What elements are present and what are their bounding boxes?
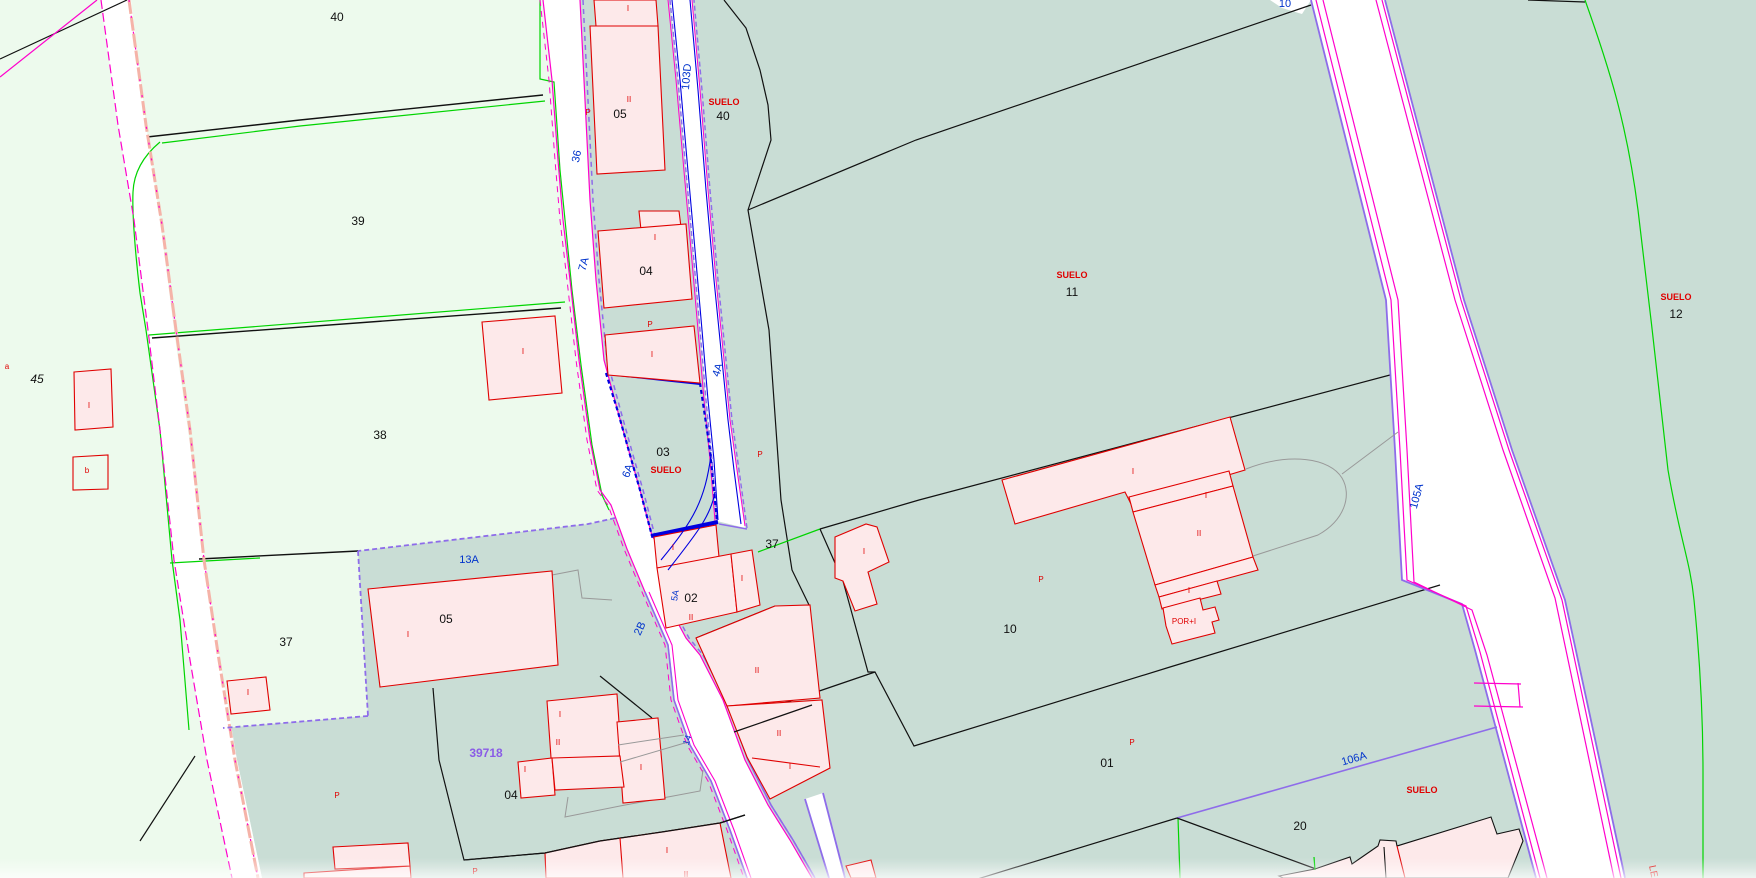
svg-text:5A: 5A (669, 589, 681, 602)
svg-text:01: 01 (1100, 756, 1114, 770)
svg-text:SUELO: SUELO (650, 465, 681, 475)
svg-text:10: 10 (1003, 622, 1017, 636)
svg-text:POR+I: POR+I (1172, 617, 1196, 626)
svg-text:I: I (1132, 467, 1134, 476)
svg-text:02: 02 (684, 591, 698, 605)
svg-text:37: 37 (279, 635, 293, 649)
svg-text:SUELO: SUELO (1406, 785, 1437, 795)
svg-text:05: 05 (439, 612, 453, 626)
svg-text:10: 10 (1279, 0, 1291, 10)
svg-text:I: I (863, 547, 865, 556)
svg-text:36: 36 (570, 149, 584, 163)
svg-text:37: 37 (765, 537, 779, 551)
svg-text:I: I (789, 762, 791, 771)
svg-text:II: II (755, 666, 759, 675)
svg-text:40: 40 (716, 109, 730, 123)
svg-text:P: P (334, 791, 339, 800)
svg-text:P: P (1038, 575, 1043, 584)
svg-text:I: I (666, 846, 668, 855)
svg-text:I: I (524, 765, 526, 774)
svg-text:40: 40 (330, 10, 344, 24)
svg-text:II: II (689, 613, 693, 622)
svg-text:04: 04 (504, 788, 518, 802)
svg-text:P: P (1129, 738, 1134, 747)
svg-text:I: I (651, 350, 653, 359)
svg-text:I: I (1188, 586, 1190, 595)
svg-text:13A: 13A (459, 554, 479, 566)
svg-text:II: II (1197, 529, 1201, 538)
svg-text:SUELO: SUELO (1660, 292, 1691, 302)
svg-text:b: b (85, 466, 90, 475)
svg-text:I: I (654, 233, 656, 242)
svg-text:II: II (777, 729, 781, 738)
svg-text:I: I (741, 574, 743, 583)
svg-text:04: 04 (639, 264, 653, 278)
svg-text:03: 03 (656, 445, 670, 459)
svg-text:11: 11 (1066, 285, 1079, 299)
svg-text:P: P (647, 320, 652, 329)
svg-text:P: P (757, 450, 762, 459)
svg-text:38: 38 (373, 428, 387, 442)
svg-text:I: I (522, 347, 524, 356)
svg-text:II: II (627, 95, 631, 104)
svg-text:I: I (640, 763, 642, 772)
svg-text:I: I (247, 688, 249, 697)
svg-text:I: I (1205, 491, 1207, 500)
svg-text:I: I (627, 4, 629, 13)
svg-text:I: I (88, 401, 90, 410)
svg-text:SUELO: SUELO (1056, 270, 1087, 280)
svg-text:39: 39 (351, 214, 365, 228)
svg-text:a: a (5, 362, 10, 371)
svg-text:SUELO: SUELO (708, 97, 739, 107)
svg-text:I: I (559, 710, 561, 719)
svg-text:12: 12 (1669, 307, 1683, 321)
svg-text:39718: 39718 (469, 746, 503, 760)
svg-text:05: 05 (613, 107, 627, 121)
svg-text:I: I (407, 630, 409, 639)
svg-text:103D: 103D (680, 63, 694, 90)
svg-text:II: II (556, 738, 560, 747)
svg-text:P: P (585, 108, 590, 117)
svg-text:20: 20 (1293, 819, 1307, 833)
svg-text:I: I (672, 543, 674, 552)
svg-text:45: 45 (30, 372, 44, 386)
